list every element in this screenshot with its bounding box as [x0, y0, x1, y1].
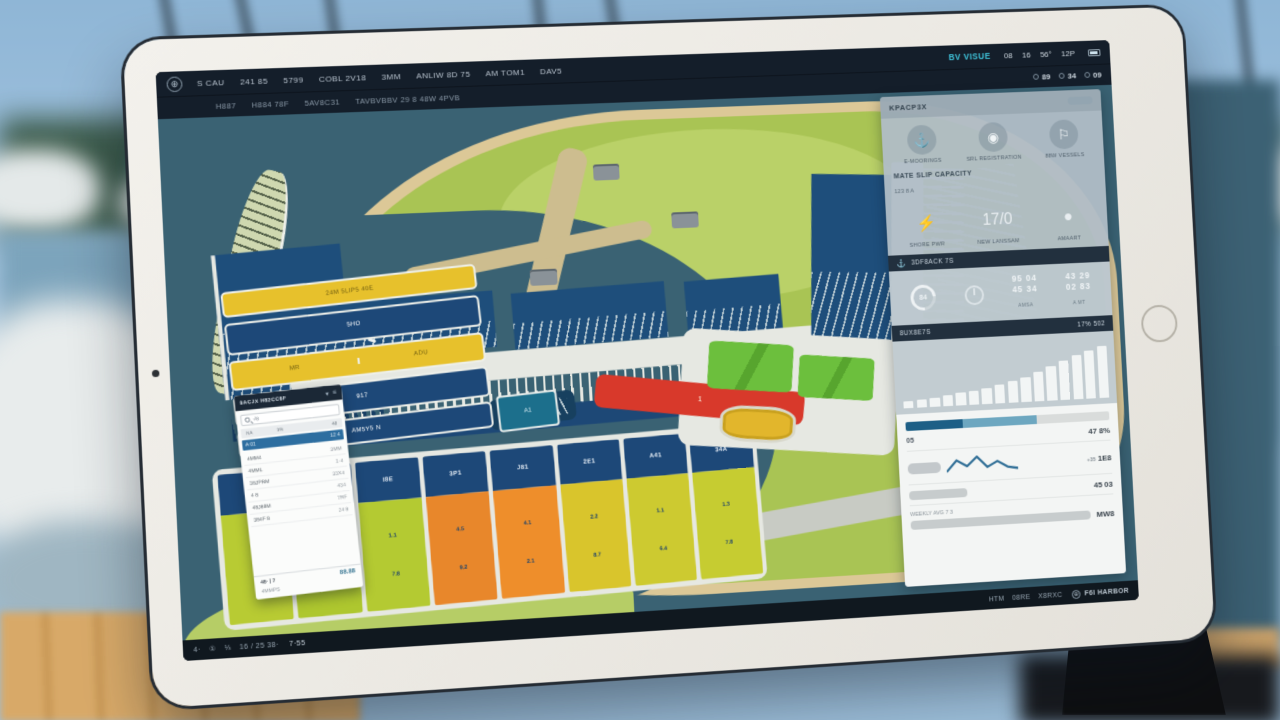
collapse-icon[interactable]: ▾ — [325, 389, 329, 397]
berth-slot-code: J81 — [490, 445, 556, 491]
quick-action[interactable]: ⚐ 88W VESSELS — [1028, 118, 1100, 160]
nav-menu-item[interactable]: 241 85 — [240, 76, 268, 86]
counter-value: 34 — [1067, 71, 1076, 80]
nav-counter: 34 — [1059, 71, 1076, 80]
green-building[interactable] — [707, 341, 795, 394]
stat-column: 95 04 45 34 AMSA — [1011, 273, 1038, 313]
nav-menu-item[interactable]: ANLIW 8D 75 — [416, 69, 471, 80]
bar — [930, 397, 941, 407]
brand-label: BV VISUE — [948, 51, 990, 62]
bar — [943, 395, 954, 406]
stat-caption: A MT — [1073, 300, 1086, 306]
utility-action-label: AMAART — [1057, 235, 1081, 242]
green-building[interactable] — [797, 354, 874, 401]
stat-value: 95 04 — [1011, 273, 1037, 285]
berth-slot-value-a: 1.1 — [657, 508, 665, 515]
berth-slot-body: 2.2 8.7 — [560, 479, 632, 593]
berth-slot-value-b: 8.7 — [594, 552, 602, 559]
yellow-pavilion[interactable] — [719, 404, 796, 443]
column-header: NA — [246, 427, 277, 436]
status-item: ⅓ — [224, 644, 231, 652]
home-button[interactable] — [1140, 304, 1178, 343]
utility-action-icon: ⚡ — [911, 208, 942, 239]
search-icon — [245, 417, 251, 423]
status-menu-item[interactable]: HTM — [989, 595, 1005, 603]
section-subtitle: 123 8 A — [894, 188, 914, 195]
berth-slot-body: 1.1 6.4 — [627, 473, 698, 586]
chart-band-title: 8UX8E7S — [900, 329, 931, 337]
bar — [969, 390, 980, 405]
berth-basin-east[interactable]: 2X — [811, 174, 891, 356]
nav-menu-item[interactable]: S CAU — [197, 78, 225, 88]
stat-value: 45 34 — [1012, 283, 1038, 295]
berth-slot-value-b: 6.4 — [660, 545, 668, 552]
status-time: 7·55 — [289, 639, 306, 647]
bar — [1071, 355, 1083, 400]
progress-segment-2 — [963, 415, 1037, 428]
metrics-panel: 05 47 8% +35 1E8 45 03 — [896, 403, 1126, 587]
utility-action[interactable]: 17/0 NEW LANSSAM — [961, 204, 1033, 246]
status-cluster: 081656°12P — [1004, 49, 1075, 60]
bar — [956, 393, 967, 406]
berth-slot-code: 3P1 — [423, 451, 490, 497]
metric-row: WEEKLY AVG 7 3 MW8 — [910, 500, 1115, 535]
berth-slot-value-a: 4.1 — [524, 520, 532, 527]
berth-slot[interactable]: 34A 1.3 7.8 — [689, 428, 763, 581]
tablet-screen: ⊕ S CAU241 855799COBL 2V183MMANLIW 8D 75… — [156, 40, 1139, 661]
nav-menu-item[interactable]: DAV5 — [540, 66, 562, 76]
gauge-value: 84 — [913, 287, 933, 308]
bar — [916, 399, 927, 408]
chart-band-value: 17% 502 — [1077, 320, 1105, 328]
menu-icon[interactable]: ≡ — [332, 389, 337, 397]
dial-icon — [964, 285, 984, 306]
building-cell: MR — [232, 358, 358, 379]
counter-dot-icon — [1059, 73, 1065, 79]
status-item: 16 / 25 38· — [239, 641, 279, 651]
quick-action-label: E-MOORINGS — [904, 158, 942, 165]
tablet: ⊕ S CAU241 855799COBL 2V183MMANLIW 8D 75… — [123, 7, 1215, 709]
quick-action-icon: ⚓ — [907, 125, 938, 156]
quick-action-icon: ⚐ — [1049, 119, 1079, 149]
car-icon — [592, 164, 620, 181]
bar — [1046, 366, 1058, 401]
bar — [982, 388, 993, 405]
search-value: √8 — [253, 416, 259, 423]
building-cell: ADU — [357, 343, 483, 364]
kpi-sidebar: KPACP3X ⚓ E-MOORINGS ◉ SRL REGISTRATION … — [880, 89, 1126, 587]
berth-list-panel: 8ACJX H82CC8F ▾ ≡ √8 NA 3% 48 A 01 12 4 — [234, 384, 364, 600]
berth-slot-body: 1.3 7.8 — [693, 467, 764, 580]
front-camera — [152, 370, 160, 378]
berth-slot-body: 4.5 9.2 — [426, 491, 498, 606]
stat-caption: AMSA — [1018, 303, 1033, 310]
sidebar-header-pill[interactable] — [1068, 96, 1093, 105]
nav-counter: 09 — [1084, 70, 1101, 79]
car-icon — [530, 268, 558, 286]
status-value: 08 — [1004, 51, 1013, 60]
bar — [1084, 350, 1096, 399]
panel-title: 8ACJX H82CC8F — [239, 391, 321, 406]
nav-menu-item[interactable]: 5799 — [283, 75, 303, 85]
status-value: 56° — [1040, 49, 1052, 58]
occupancy-bar-chart — [892, 331, 1117, 415]
building-annex[interactable]: A1 — [496, 389, 560, 432]
status-menu-item[interactable]: X8RXC — [1038, 591, 1063, 599]
metric-label: 05 — [906, 438, 914, 445]
utility-action[interactable]: ⚡ SHORE PWR — [890, 207, 963, 249]
status-item: 4· — [193, 646, 201, 654]
battery-icon — [1088, 49, 1101, 56]
column-header: 3% — [276, 424, 307, 432]
metric-value: 45 03 — [1094, 480, 1114, 490]
counter-value: 89 — [1042, 72, 1051, 81]
berth-slot-value-b: 2.1 — [527, 558, 535, 565]
status-value: 16 — [1022, 50, 1031, 59]
bar — [995, 385, 1006, 404]
status-value: 12P — [1061, 49, 1075, 58]
bar-series — [901, 338, 1110, 408]
metric-value: 1E8 — [1098, 453, 1112, 463]
main-menu: S CAU241 855799COBL 2V183MMANLIW 8D 75AM… — [197, 66, 562, 88]
bar — [1020, 377, 1031, 403]
status-left-group: 4·①⅓16 / 25 38· — [193, 641, 279, 655]
quick-actions: ⚓ E-MOORINGS ◉ SRL REGISTRATION ⚐ 88W VE… — [881, 110, 1104, 171]
quick-action[interactable]: ⚓ E-MOORINGS — [886, 124, 959, 166]
nav-counter: 89 — [1033, 72, 1051, 81]
row-name: 384F 8 — [253, 511, 301, 523]
metric-value-group: +35 1E8 — [1087, 453, 1112, 463]
status-item: ① — [209, 645, 216, 654]
berth-slot-code: I8E — [355, 457, 422, 503]
berth-slot-value-b: 7.8 — [726, 539, 734, 546]
car-icon — [671, 211, 698, 228]
metric-chip — [908, 462, 942, 475]
stat-column: 43 29 02 83 A MT — [1065, 270, 1092, 310]
stat-value: 43 29 — [1065, 270, 1091, 282]
footer-brand: ⊕ F6I HARBOR — [1072, 586, 1129, 598]
row-name: A 01 — [245, 437, 293, 448]
footer-brand-icon: ⊕ — [1072, 589, 1081, 598]
berth-list: 4MM4 3MM 4MML 1·4 38JPRM 33X4 4 8 434 48… — [240, 441, 361, 576]
marina-photo-scene: ⊕ S CAU241 855799COBL 2V183MMANLIW 8D 75… — [0, 0, 1280, 720]
sparkline-chart — [946, 452, 1018, 478]
bar — [1097, 345, 1110, 398]
sidebar-title: KPACP3X — [889, 102, 927, 112]
counter-dot-icon — [1033, 74, 1039, 80]
berth-slot-value-a: 4.5 — [456, 526, 464, 533]
blurred-boat-hull — [0, 150, 100, 230]
utility-action-icon: ● — [1053, 202, 1083, 233]
band-title: 3DF8ACK 7S — [911, 257, 954, 266]
berth-slot-value-b: 9.2 — [460, 564, 468, 571]
progress-segment-1 — [905, 419, 963, 431]
status-menu-item[interactable]: 08RE — [1012, 593, 1031, 601]
berth-slot[interactable]: 3P1 4.5 9.2 — [423, 451, 499, 606]
berth-slot-code: A41 — [623, 433, 688, 478]
utility-action-label: NEW LANSSAM — [977, 238, 1019, 246]
quick-action[interactable]: ◉ SRL REGISTRATION — [957, 121, 1029, 163]
utility-action-icon: 17/0 — [982, 205, 1012, 236]
footer-total: 88.88 — [340, 568, 356, 576]
quick-action-label: 88W VESSELS — [1045, 152, 1085, 159]
breadcrumb-item[interactable]: H887 — [216, 101, 237, 111]
bar — [1058, 360, 1070, 400]
utility-action-label: SHORE PWR — [909, 241, 945, 248]
column-header: 48 — [307, 421, 338, 429]
quick-action-label: SRL REGISTRATION — [966, 155, 1022, 163]
berth-slot-value-b: 7.8 — [392, 571, 400, 578]
breadcrumb-menu: H887H884 78F5AV8C31TAVBVBBV 29 8 48W 4PV… — [216, 93, 461, 111]
berth-slot[interactable]: A41 1.1 6.4 — [623, 433, 698, 586]
berth-slot[interactable]: J81 4.1 2.1 — [490, 445, 565, 599]
nav-menu-item[interactable]: AM TOM1 — [485, 67, 525, 77]
berth-slot-body: 1.1 7.8 — [358, 498, 431, 613]
quick-action-icon: ◉ — [978, 122, 1008, 152]
spacer — [576, 58, 935, 70]
status-right-group: HTM08REX8RXC — [989, 591, 1063, 603]
stat-value: 02 83 — [1066, 281, 1092, 293]
metric-value: 47 8% — [1088, 426, 1110, 436]
footer-label: 48· | 7 — [260, 578, 275, 586]
nav-menu-item[interactable]: 3MM — [381, 72, 401, 82]
breadcrumb-item[interactable]: 5AV8C31 — [304, 97, 340, 107]
app-logo-icon: ⊕ — [166, 76, 182, 92]
berth-slot-value-a: 1.3 — [722, 501, 730, 508]
berth-slot-value-a: 2.2 — [590, 514, 598, 521]
berth-slot-code: 2E1 — [557, 439, 623, 485]
bar — [903, 401, 913, 409]
berth-slot-value-a: 1.1 — [389, 532, 397, 539]
counter-dot-icon — [1084, 72, 1090, 78]
nav-counters: 893409 — [1033, 70, 1102, 81]
gauge-icon: 84 — [905, 279, 940, 315]
metric-sub-value: +35 — [1087, 457, 1096, 463]
bar — [1033, 371, 1045, 401]
breadcrumb-item[interactable]: TAVBVBBV 29 8 48W 4PVB — [355, 93, 460, 106]
footer-brand-label: F6I HARBOR — [1084, 587, 1129, 597]
berth-slot[interactable]: 2E1 2.2 8.7 — [557, 439, 632, 593]
counter-value: 09 — [1093, 70, 1102, 79]
berth-slot-body: 4.1 2.1 — [493, 485, 565, 599]
metric-row-sparkline: +35 1E8 — [907, 447, 1112, 486]
utility-action[interactable]: ● AMAART — [1032, 201, 1104, 243]
row-value: 12 4 — [293, 431, 341, 442]
anchor-icon: ⚓ — [896, 258, 907, 267]
row-value: 24 8 — [301, 506, 349, 518]
metric-bar — [909, 488, 968, 500]
nav-menu-item[interactable]: COBL 2V18 — [319, 73, 367, 84]
bar — [1007, 381, 1018, 403]
metric-value: MW8 — [1096, 509, 1114, 519]
berth-slot[interactable]: I8E 1.1 7.8 — [355, 457, 431, 612]
breadcrumb-item[interactable]: H884 78F — [251, 99, 289, 109]
